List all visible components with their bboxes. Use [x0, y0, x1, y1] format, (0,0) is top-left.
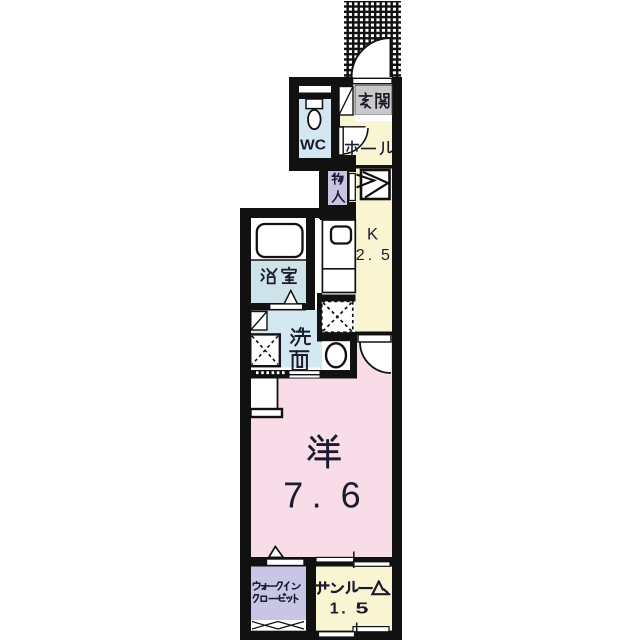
svg-text:WC: WC [300, 136, 326, 153]
svg-text:K: K [367, 226, 378, 244]
svg-text:1.: 1. [330, 600, 346, 617]
svg-text:5: 5 [356, 600, 369, 618]
